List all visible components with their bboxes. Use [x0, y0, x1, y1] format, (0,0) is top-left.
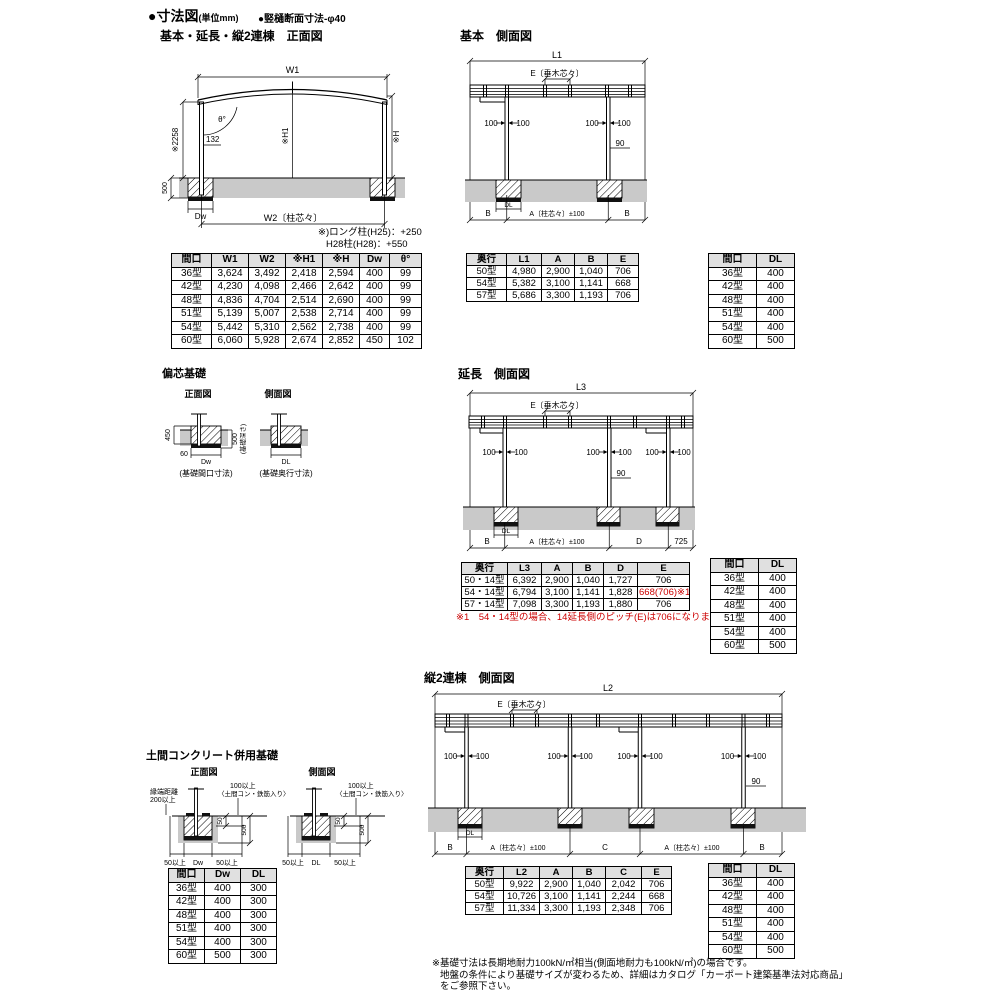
long-post-note-line1: ※)ロング柱(H25)：+250 [318, 227, 422, 239]
column-header: DL [757, 254, 795, 268]
value-cell: 2,900 [542, 575, 573, 587]
dim-100-label: 100 [721, 752, 735, 761]
table-row: 36型400 [711, 572, 797, 586]
row-label: 57・14型 [462, 599, 508, 611]
value-cell: 400 [759, 626, 797, 640]
value-cell: 400 [757, 321, 795, 335]
table-row: 36型400300 [169, 882, 277, 896]
row-label: 42型 [709, 281, 757, 295]
column-header: 奥行 [466, 867, 504, 879]
column-header: 奥行 [467, 254, 507, 266]
slab-foundation-title: 土間コンクリート併用基礎 [146, 747, 278, 763]
slab-50-label: 50 [335, 817, 342, 825]
dim-100-label: 100 [579, 752, 593, 761]
value-cell: 5,139 [212, 308, 249, 322]
footnote-line2: 地盤の条件により基礎サイズが変わるため、詳細はカタログ「カーポート建築基準法対応… [432, 970, 848, 982]
value-cell: 3,100 [542, 278, 575, 290]
value-cell: 3,100 [540, 891, 573, 903]
table-row: 60型6,0605,9282,6742,852450102 [172, 335, 422, 349]
table-row: 51型400 [709, 308, 795, 322]
dim-e-label: E〔垂木芯々〕 [530, 400, 583, 410]
table-row: 54型5,4425,3102,5622,73840099 [172, 321, 422, 335]
column-header: D [604, 563, 638, 575]
column-header: E [642, 867, 672, 879]
dim-100-label: 100 [514, 448, 528, 457]
slab-min50-label: 50以上 [216, 858, 238, 867]
value-cell: 2,690 [323, 294, 360, 308]
value-cell: 1,828 [604, 587, 638, 599]
footnote-line3: をご参照下さい。 [432, 981, 848, 993]
value-cell: 706 [642, 879, 672, 891]
column-header: 奥行 [462, 563, 508, 575]
front-view-title: 基本・延長・縦2連棟 正面図 [160, 27, 323, 44]
value-cell: 2,852 [323, 335, 360, 349]
value-cell: 5,928 [249, 335, 286, 349]
dim-e-label: E〔垂木芯々〕 [530, 68, 583, 78]
row-label: 54型 [709, 931, 757, 945]
dim-100-label: 100 [753, 752, 767, 761]
value-cell: 400 [757, 877, 795, 891]
table-row: 48型400300 [169, 909, 277, 923]
row-label: 36型 [169, 882, 205, 896]
value-cell: 400 [759, 572, 797, 586]
column-header: 間口 [709, 254, 757, 268]
value-cell: 400 [757, 918, 795, 932]
eccentric-foundation-diagram: 正面図 側面図 [158, 386, 368, 486]
column-header: W1 [212, 254, 249, 268]
row-label: 36型 [709, 877, 757, 891]
value-cell: 668 [608, 278, 639, 290]
row-label: 51型 [711, 613, 759, 627]
extension-side-table: 奥行L3ABDE50・14型6,3922,9001,0401,72770654・… [461, 562, 690, 611]
dim-725-label: 725 [674, 537, 688, 546]
value-cell: 6,392 [508, 575, 542, 587]
value-cell: 400 [360, 308, 390, 322]
row-label: 48型 [172, 294, 212, 308]
value-cell: 7,098 [508, 599, 542, 611]
column-header: 間口 [709, 864, 757, 878]
column-header: L1 [507, 254, 542, 266]
value-cell: 1,141 [573, 587, 604, 599]
dim-90-label: 90 [617, 469, 626, 478]
ecc-dw-label: Dw [201, 459, 212, 466]
row-label: 48型 [709, 294, 757, 308]
dim-100-label: 100 [617, 119, 631, 128]
table-row: 36型400 [709, 267, 795, 281]
column-header: θ° [390, 254, 422, 268]
row-label: 60型 [709, 945, 757, 959]
value-cell: 2,562 [286, 321, 323, 335]
dim-100-label: 100 [547, 752, 561, 761]
row-label: 51型 [172, 308, 212, 322]
value-cell: 500 [757, 945, 795, 959]
mini-table-extension: 間口DL36型40042型40048型40051型40054型40060型500 [710, 558, 797, 654]
table-row: 60型500300 [169, 950, 277, 964]
dim-w2-label: W2〔柱芯々〕 [264, 212, 323, 223]
dim-w1-label: W1 [286, 65, 300, 75]
column-header: E [608, 254, 639, 266]
dim-c-label: C [602, 843, 608, 852]
basic-side-table: 奥行L1ABE50型4,9802,9001,04070654型5,3823,10… [466, 253, 639, 302]
page-title: ●寸法図(単位mm) [148, 6, 238, 26]
dim-2258-label: ※2258 [171, 127, 180, 152]
table-row: 54型400 [709, 931, 795, 945]
table-row: 54型400 [711, 626, 797, 640]
value-cell: 102 [390, 335, 422, 349]
spec-sheet-page: ●寸法図(単位mm) ●竪樋断面寸法-φ40 基本・延長・縦2連棟 正面図 基本… [0, 0, 1000, 1000]
table-row: 42型400 [709, 281, 795, 295]
column-header: A [540, 867, 573, 879]
dim-h1-label: ※H1 [281, 127, 290, 144]
column-header: W2 [249, 254, 286, 268]
row-label: 42型 [711, 586, 759, 600]
dim-90-label: 90 [752, 777, 761, 786]
row-label: 54型 [466, 891, 504, 903]
dim-dw-label: Dw [195, 212, 207, 221]
value-cell: 4,704 [249, 294, 286, 308]
table-row: 54型10,7263,1001,1412,244668 [466, 891, 672, 903]
slab-100-label: 100以上 [230, 781, 256, 790]
slab-side-label: 側面図 [307, 766, 335, 777]
value-cell: 706 [608, 266, 639, 278]
ecc-front-caption: (基礎間口寸法) [179, 468, 233, 478]
value-cell: 2,418 [286, 267, 323, 281]
column-header: 間口 [169, 869, 205, 883]
value-cell: 668(706)※1 [638, 587, 690, 599]
value-cell: 1,141 [575, 278, 608, 290]
value-cell: 1,193 [573, 903, 606, 915]
value-cell: 400 [757, 308, 795, 322]
value-cell: 400 [205, 882, 241, 896]
row-label: 48型 [709, 904, 757, 918]
value-cell: 2,900 [540, 879, 573, 891]
value-cell: 1,727 [604, 575, 638, 587]
dim-theta-label: θ° [218, 115, 226, 124]
value-cell: 400 [360, 321, 390, 335]
long-post-note: ※)ロング柱(H25)：+250 H28柱(H28)：+550 [318, 227, 422, 250]
slab-500-label: 500 [359, 824, 366, 835]
dim-b-label: B [759, 843, 764, 852]
row-label: 36型 [709, 267, 757, 281]
dim-100-label: 100 [585, 119, 599, 128]
value-cell: 3,300 [542, 599, 573, 611]
dim-h-label: ※H [392, 131, 401, 144]
value-cell: 400 [757, 281, 795, 295]
table-row: 57型5,6863,3001,193706 [467, 290, 639, 302]
basic-side-diagram: L1 E〔垂木芯々〕 100 100 100 100 90 DL B A〔柱芯々… [455, 45, 705, 245]
value-cell: 2,642 [323, 281, 360, 295]
page-title-text: ●寸法図 [148, 8, 198, 24]
eccentric-front-label: 正面図 [184, 389, 211, 399]
table-row: 50型9,9222,9001,0402,042706 [466, 879, 672, 891]
slab-foundation-table: 間口DwDL36型40030042型40030048型40030051型4003… [168, 868, 277, 964]
value-cell: 400 [757, 294, 795, 308]
column-header: DL [757, 864, 795, 878]
value-cell: 3,300 [542, 290, 575, 302]
dim-100-label: 100 [586, 448, 600, 457]
column-header: DL [241, 869, 277, 883]
footnote-line1: ※基礎寸法は長期地耐力100kN/㎡相当(側面地耐力も100kN/㎡)の場合です… [432, 958, 848, 970]
value-cell: 5,007 [249, 308, 286, 322]
value-cell: 400 [360, 281, 390, 295]
row-label: 36型 [172, 267, 212, 281]
dim-100-label: 100 [649, 752, 663, 761]
value-cell: 2,594 [323, 267, 360, 281]
value-cell: 2,514 [286, 294, 323, 308]
value-cell: 706 [638, 575, 690, 587]
value-cell: 400 [205, 936, 241, 950]
value-cell: 500 [759, 640, 797, 654]
dim-90-label: 90 [616, 139, 625, 148]
dim-100-label: 100 [617, 752, 631, 761]
column-header: B [573, 867, 606, 879]
dim-100-label: 100 [645, 448, 659, 457]
ecc-side-caption: (基礎奥行寸法) [259, 468, 313, 478]
value-cell: 1,880 [604, 599, 638, 611]
value-cell: 5,442 [212, 321, 249, 335]
value-cell: 450 [360, 335, 390, 349]
dim-100-label: 100 [516, 119, 530, 128]
value-cell: 9,922 [504, 879, 540, 891]
table-row: 48型400 [709, 294, 795, 308]
dim-a-label: A〔柱芯々〕±100 [664, 843, 719, 852]
value-cell: 3,624 [212, 267, 249, 281]
value-cell: 6,794 [508, 587, 542, 599]
row-label: 50型 [467, 266, 507, 278]
table-header-row: 間口W1W2※H1※HDwθ° [172, 254, 422, 268]
value-cell: 706 [642, 903, 672, 915]
value-cell: 99 [390, 308, 422, 322]
eccentric-side-label: 側面図 [263, 388, 291, 399]
column-header: 間口 [172, 254, 212, 268]
slab-foundation-diagram: 正面図 側面図 [142, 764, 442, 869]
value-cell: 668 [642, 891, 672, 903]
value-cell: 2,042 [606, 879, 642, 891]
page-title-unit: (単位mm) [198, 13, 238, 23]
slab-rebar-label: 〈土間コン・鉄筋入り〉 [336, 789, 408, 798]
mini-table-basic: 間口DL36型40042型40048型40051型40054型40060型500 [708, 253, 795, 349]
row-label: 42型 [172, 281, 212, 295]
table-header-row: 間口DL [709, 864, 795, 878]
table-row: 60型500 [711, 640, 797, 654]
column-header: L3 [508, 563, 542, 575]
extension-note: ※1 54・14型の場合、14延長側のピッチ(E)は706になります。 [456, 612, 728, 624]
foundation-footnote: ※基礎寸法は長期地耐力100kN/㎡相当(側面地耐力も100kN/㎡)の場合です… [432, 958, 848, 993]
long-post-note-line2: H28柱(H28)：+550 [318, 239, 422, 251]
dim-b-label: B [624, 209, 629, 218]
table-row: 48型4,8364,7042,5142,69040099 [172, 294, 422, 308]
dim-100-label: 100 [444, 752, 458, 761]
value-cell: 400 [757, 891, 795, 905]
double-side-linework [428, 691, 806, 857]
dim-132-label: 132 [206, 135, 220, 144]
value-cell: 2,348 [606, 903, 642, 915]
extension-side-linework [463, 390, 696, 551]
table-row: 36型400 [709, 877, 795, 891]
dim-a-label: A〔柱芯々〕±100 [529, 209, 584, 218]
double-side-title: 縦2連棟 側面図 [424, 669, 515, 686]
value-cell: 400 [360, 267, 390, 281]
slab-rebar-label: 〈土間コン・鉄筋入り〉 [218, 789, 290, 798]
value-cell: 706 [608, 290, 639, 302]
dim-b-label: B [485, 209, 490, 218]
table-row: 50型4,9802,9001,040706 [467, 266, 639, 278]
value-cell: 300 [241, 923, 277, 937]
value-cell: 3,492 [249, 267, 286, 281]
value-cell: 400 [759, 599, 797, 613]
value-cell: 11,334 [504, 903, 540, 915]
value-cell: 2,738 [323, 321, 360, 335]
dim-b-label: B [447, 843, 452, 852]
value-cell: 300 [241, 909, 277, 923]
extension-side-title: 延長 側面図 [458, 365, 530, 382]
table-row: 54型5,3823,1001,141668 [467, 278, 639, 290]
value-cell: 500 [757, 335, 795, 349]
slab-edge-label2: 200以上 [150, 795, 176, 804]
ecc-60-label: 60 [180, 451, 188, 458]
row-label: 54型 [467, 278, 507, 290]
table-row: 42型400 [711, 586, 797, 600]
row-label: 60型 [709, 335, 757, 349]
slab-min50-label: 50以上 [334, 858, 356, 867]
table-row: 60型500 [709, 945, 795, 959]
value-cell: 6,060 [212, 335, 249, 349]
table-row: 36型3,6243,4922,4182,59440099 [172, 267, 422, 281]
row-label: 60型 [172, 335, 212, 349]
row-label: 54型 [709, 321, 757, 335]
slab-100-label: 100以上 [348, 781, 374, 790]
double-side-table: 奥行L2ABCE50型9,9222,9001,0402,04270654型10,… [465, 866, 672, 915]
column-header: DL [759, 559, 797, 573]
value-cell: 3,100 [542, 587, 573, 599]
dim-dl-label: DL [504, 202, 513, 209]
row-label: 57型 [467, 290, 507, 302]
dim-a-label: A〔柱芯々〕±100 [529, 537, 584, 546]
value-cell: 5,686 [507, 290, 542, 302]
row-label: 42型 [169, 896, 205, 910]
value-cell: 2,244 [606, 891, 642, 903]
row-label: 51型 [169, 923, 205, 937]
table-row: 54型400 [709, 321, 795, 335]
table-row: 51型5,1395,0072,5382,71440099 [172, 308, 422, 322]
row-label: 51型 [709, 918, 757, 932]
column-header: L2 [504, 867, 540, 879]
value-cell: 2,674 [286, 335, 323, 349]
value-cell: 1,193 [575, 290, 608, 302]
basic-side-title: 基本 側面図 [460, 27, 532, 44]
column-header: E [638, 563, 690, 575]
dim-dl-label: DL [466, 830, 475, 837]
dim-l3-label: L3 [576, 382, 586, 392]
dim-500-label: 500 [162, 182, 169, 194]
row-label: 42型 [709, 891, 757, 905]
value-cell: 300 [241, 950, 277, 964]
dim-e-label: E〔垂木芯々〕 [497, 699, 550, 709]
table-row: 54・14型6,7943,1001,1411,828668(706)※1 [462, 587, 690, 599]
double-side-diagram: L2 E〔垂木芯々〕 100 100 100 100 100 100 100 1… [428, 686, 806, 862]
downpipe-note: ●竪樋断面寸法-φ40 [258, 10, 346, 25]
table-header-row: 奥行L3ABDE [462, 563, 690, 575]
value-cell: 99 [390, 267, 422, 281]
eccentric-side-linework [260, 414, 308, 458]
slab-50-label: 50 [217, 817, 224, 825]
table-row: 51型400300 [169, 923, 277, 937]
column-header: A [542, 563, 573, 575]
table-row: 51型400 [711, 613, 797, 627]
table-header-row: 奥行L2ABCE [466, 867, 672, 879]
row-label: 54型 [711, 626, 759, 640]
value-cell: 400 [205, 923, 241, 937]
ecc-dl-label: DL [282, 459, 291, 466]
value-cell: 706 [638, 599, 690, 611]
table-header-row: 奥行L1ABE [467, 254, 639, 266]
row-label: 50型 [466, 879, 504, 891]
slab-front-label: 正面図 [190, 767, 217, 777]
slab-min50-label: 50以上 [282, 858, 304, 867]
table-row: 42型400 [709, 891, 795, 905]
value-cell: 4,836 [212, 294, 249, 308]
slab-min50-label: 50以上 [164, 858, 186, 867]
row-label: 50・14型 [462, 575, 508, 587]
value-cell: 1,141 [573, 891, 606, 903]
value-cell: 2,714 [323, 308, 360, 322]
table-row: 50・14型6,3922,9001,0401,727706 [462, 575, 690, 587]
row-label: 60型 [711, 640, 759, 654]
dim-a-label: A〔柱芯々〕±100 [490, 843, 545, 852]
column-header: A [542, 254, 575, 266]
dim-d-label: D [636, 537, 642, 546]
value-cell: 400 [757, 904, 795, 918]
column-header: Dw [360, 254, 390, 268]
value-cell: 400 [757, 267, 795, 281]
front-view-linework [168, 74, 405, 228]
dim-100-label: 100 [476, 752, 490, 761]
extension-side-diagram: L3 E〔垂木芯々〕 100 100 100 100 100 100 90 DL… [455, 383, 775, 558]
slab-dl-label: DL [312, 860, 321, 867]
value-cell: 400 [205, 909, 241, 923]
table-header-row: 間口DL [711, 559, 797, 573]
value-cell: 2,466 [286, 281, 323, 295]
row-label: 54・14型 [462, 587, 508, 599]
value-cell: 300 [241, 896, 277, 910]
value-cell: 4,230 [212, 281, 249, 295]
value-cell: 5,382 [507, 278, 542, 290]
ecc-500-label: 500 [232, 433, 239, 445]
value-cell: 400 [757, 931, 795, 945]
table-header-row: 間口DL [709, 254, 795, 268]
row-label: 36型 [711, 572, 759, 586]
row-label: 48型 [711, 599, 759, 613]
dim-dl-label: DL [502, 528, 511, 535]
dim-100-label: 100 [618, 448, 632, 457]
table-row: 57型11,3343,3001,1932,348706 [466, 903, 672, 915]
table-row: 42型4,2304,0982,4662,64240099 [172, 281, 422, 295]
value-cell: 99 [390, 281, 422, 295]
dim-l2-label: L2 [603, 683, 613, 693]
table-header-row: 間口DwDL [169, 869, 277, 883]
dim-100-label: 100 [677, 448, 691, 457]
value-cell: 2,900 [542, 266, 575, 278]
value-cell: 4,098 [249, 281, 286, 295]
column-header: ※H [323, 254, 360, 268]
table-row: 57・14型7,0983,3001,1931,880706 [462, 599, 690, 611]
ecc-450-label: 450 [165, 429, 172, 441]
slab-edge-label1: 縁端距離 [150, 787, 178, 796]
dim-100-label: 100 [482, 448, 496, 457]
table-row: 48型400 [711, 599, 797, 613]
value-cell: 500 [205, 950, 241, 964]
dim-100-label: 100 [484, 119, 498, 128]
